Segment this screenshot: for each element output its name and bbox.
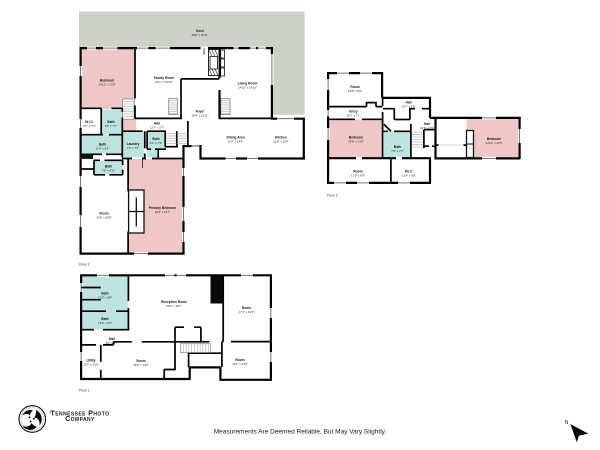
svg-text:18'4" x 10'11": 18'4" x 10'11" — [192, 114, 209, 118]
svg-text:48'8" x 18'11": 48'8" x 18'11" — [192, 33, 209, 37]
svg-text:14'10" x 13'9": 14'10" x 13'9" — [98, 83, 115, 87]
svg-text:12'7" x 2'7": 12'7" x 2'7" — [150, 126, 164, 130]
svg-text:10'3" x 7'3": 10'3" x 7'3" — [420, 126, 434, 130]
svg-text:10'7" x 7'1": 10'7" x 7'1" — [346, 114, 360, 118]
svg-text:29'4" x 18'7": 29'4" x 18'7" — [166, 304, 182, 308]
svg-text:15'5" x 9'5": 15'5" x 9'5" — [348, 89, 362, 93]
svg-text:8'2" x 4'7": 8'2" x 4'7" — [106, 341, 118, 345]
svg-text:11'9" x 14'9": 11'9" x 14'9" — [228, 140, 243, 144]
svg-text:12'9" x 12'9": 12'9" x 12'9" — [273, 140, 289, 144]
svg-text:6'1" x 7'9": 6'1" x 7'9" — [150, 141, 162, 145]
svg-text:12'4" x 6'8": 12'4" x 6'8" — [402, 174, 416, 178]
svg-text:7'4" x 7'5": 7'4" x 7'5" — [127, 146, 139, 150]
svg-text:7'6" x 4'11": 7'6" x 4'11" — [102, 169, 116, 173]
svg-text:15'8" x 20'8": 15'8" x 20'8" — [96, 216, 112, 220]
svg-text:7'10" x 9'9": 7'10" x 9'9" — [98, 296, 112, 300]
svg-text:17'1" x 10'9": 17'1" x 10'9" — [239, 310, 255, 314]
svg-text:Measurements Are Deemed Reliab: Measurements Are Deemed Reliable, But Ma… — [214, 428, 387, 435]
svg-text:13'4" x 14'6": 13'4" x 14'6" — [232, 362, 248, 366]
svg-text:13'7" x 3'5": 13'7" x 3'5" — [401, 105, 415, 109]
svg-text:5'5" x 7'7": 5'5" x 7'7" — [105, 124, 117, 128]
svg-text:11'6" x 8'4": 11'6" x 8'4" — [96, 147, 110, 151]
svg-text:11'0" x 5'10": 11'0" x 5'10" — [83, 363, 98, 367]
svg-text:21'1" x 15'10": 21'1" x 15'10" — [155, 80, 172, 84]
svg-text:14'10" x 19'10": 14'10" x 19'10" — [238, 86, 257, 90]
svg-text:17'9" x 8'9": 17'9" x 8'9" — [351, 174, 365, 178]
svg-text:Company: Company — [65, 416, 95, 423]
svg-text:7'6" x 7'1": 7'6" x 7'1" — [391, 149, 403, 153]
svg-text:19'8" x 14'5": 19'8" x 14'5" — [133, 363, 149, 367]
svg-text:N: N — [565, 420, 569, 426]
svg-text:5'7" x 7'3": 5'7" x 7'3" — [83, 124, 95, 128]
svg-text:Floor 2: Floor 2 — [79, 263, 90, 267]
svg-text:Floor 3: Floor 3 — [327, 194, 338, 198]
svg-text:15'8" x 13'9": 15'8" x 13'9" — [348, 140, 364, 144]
svg-text:14'10" x 12'5": 14'10" x 12'5" — [485, 141, 502, 145]
svg-text:13'8" x 4'4": 13'8" x 4'4" — [98, 321, 112, 325]
svg-text:Floor 1: Floor 1 — [79, 389, 90, 393]
svg-text:23'4" x 16'7": 23'4" x 16'7" — [155, 210, 171, 214]
